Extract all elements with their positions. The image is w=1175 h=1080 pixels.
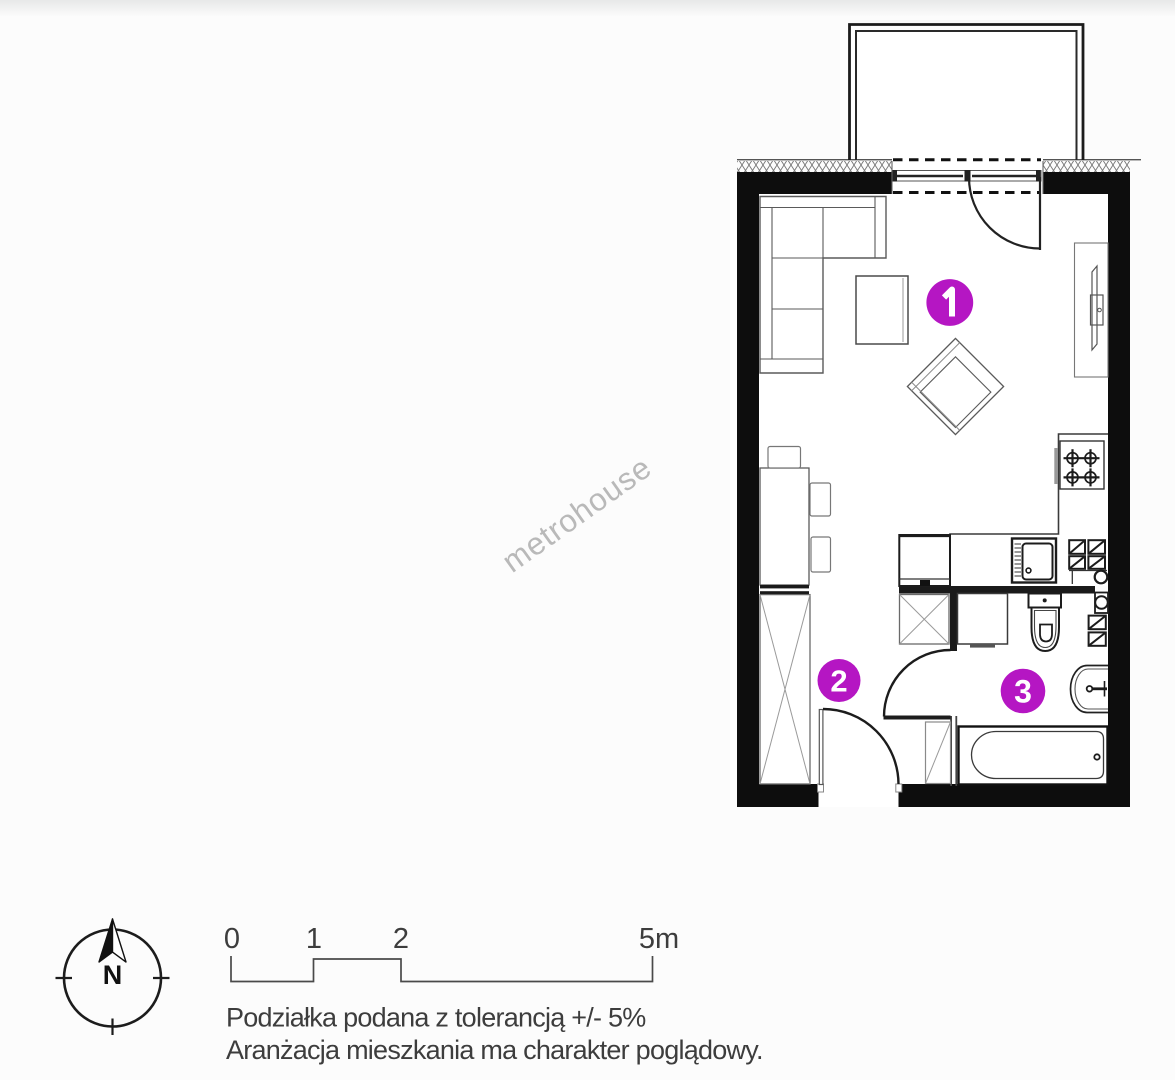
- svg-text:2: 2: [393, 923, 409, 955]
- svg-text:1: 1: [306, 923, 322, 955]
- svg-text:3: 3: [1014, 674, 1032, 710]
- svg-text:5m: 5m: [639, 923, 679, 955]
- svg-text:Podziałka podana z tolerancją: Podziałka podana z tolerancją +/- 5%: [226, 1003, 646, 1033]
- svg-text:N: N: [103, 960, 123, 990]
- svg-text:0: 0: [224, 923, 240, 955]
- svg-text:Aranżacja mieszkania ma charak: Aranżacja mieszkania ma charakter pogląd…: [226, 1035, 763, 1065]
- svg-text:2: 2: [830, 664, 847, 699]
